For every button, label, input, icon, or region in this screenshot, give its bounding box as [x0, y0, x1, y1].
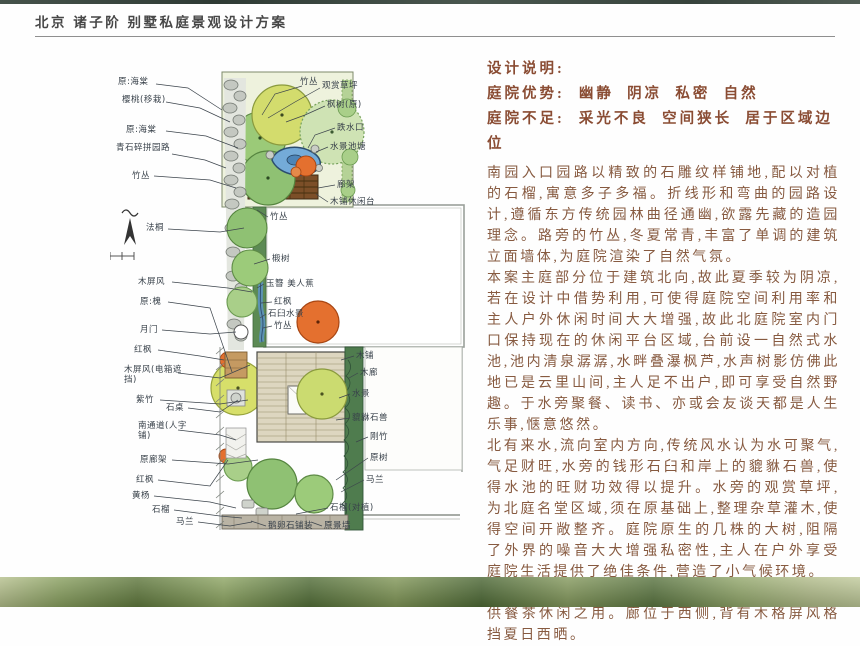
- plan-label: 刚竹: [370, 433, 388, 443]
- plan-label: 玉簪 美人蕉: [266, 280, 314, 290]
- plan-label: 青石碎拼园路: [116, 144, 172, 154]
- north-arrow: [122, 210, 138, 245]
- plan-label: 红枫: [136, 476, 154, 486]
- plan-label: 月门: [140, 326, 158, 336]
- plan-label: 南通道(人字铺): [138, 422, 188, 441]
- plan-label: 竹丛: [270, 213, 288, 223]
- courtyard-pros-line: 庭院优势:幽静 阴凉 私密 自然: [487, 82, 840, 107]
- plan-label: 石臼水景: [268, 310, 304, 320]
- plan-label: 木廊: [360, 369, 378, 379]
- plan-label: 法桐: [146, 224, 164, 234]
- plan-label: 石桌: [166, 404, 184, 414]
- plan-label: 貔貅石兽: [352, 414, 388, 424]
- plan-label: 原廊架: [140, 456, 167, 466]
- page: { "header": { "title": "北京 诸子阶 别墅私庭景观设计方…: [0, 0, 860, 607]
- page-title: 北京 诸子阶 别墅私庭景观设计方案: [35, 11, 288, 31]
- plan-label: 廊架: [337, 181, 355, 191]
- plan-label: 石榴: [152, 506, 170, 516]
- courtyard-cons-line: 庭院不足:采光不良 空间狭长 居于区域边位: [487, 107, 840, 157]
- design-notes: 设计说明: 庭院优势:幽静 阴凉 私密 自然 庭院不足:采光不良 空间狭长 居于…: [487, 57, 840, 646]
- plan-label: 竹丛: [132, 172, 150, 182]
- top-accent-bar: [0, 0, 860, 4]
- pros-label: 庭院优势:: [487, 86, 565, 102]
- plan-label: 红枫: [134, 346, 152, 356]
- notes-paragraph: 南园入口园路以精致的石雕纹样铺地,配以对植的石榴,寓意多子多福。折线形和弯曲的园…: [487, 163, 840, 268]
- plan-label: 木屏风: [138, 278, 165, 288]
- plan-label: 观赏草坪: [322, 82, 358, 92]
- plan-label: 原:海棠: [126, 126, 156, 136]
- plan-label: 竹丛: [274, 322, 292, 332]
- plan-label: 马兰: [366, 476, 384, 486]
- plan-label: 鹅卵石铺装: [268, 522, 313, 532]
- scale-bar: [110, 252, 134, 260]
- plan-label: 石榴(对植): [330, 504, 374, 514]
- cons-label: 庭院不足:: [487, 111, 565, 127]
- plan-label: 水景池塘: [330, 143, 366, 153]
- plan-label: 水景: [352, 390, 370, 400]
- plan-label: 木铺休闲台: [330, 198, 375, 208]
- plan-label: 黄杨: [132, 492, 150, 502]
- plan-label: 原:海棠: [118, 78, 148, 88]
- design-notes-heading: 设计说明:: [487, 57, 840, 82]
- plan-label: 木铺: [356, 352, 374, 362]
- plan-label: 红枫: [274, 298, 292, 308]
- plan-label: 椴树: [272, 255, 290, 265]
- plan-label: 原:槐: [140, 298, 161, 308]
- plan-label: 原树: [370, 454, 388, 464]
- plan-label: 跌水口: [337, 124, 364, 134]
- plan-label: 紫竹: [136, 396, 154, 406]
- plan-label: 马兰: [176, 518, 194, 528]
- plan-label: 木屏风(电箱遮挡): [124, 366, 186, 385]
- notes-paragraph: 本案主庭部分位于建筑北向,故此夏季较为阴凉,若在设计中借势利用,可使得庭院空间利…: [487, 268, 840, 436]
- plan-label: 樱桃(移栽): [122, 96, 166, 106]
- garden-plan: 原:海棠 樱桃(移栽) 原:海棠 青石碎拼园路 竹丛 法桐 木屏风 原:槐 月门…: [110, 60, 480, 565]
- plan-label: 枫树(原): [327, 101, 362, 111]
- plan-label: 原景墙: [324, 522, 351, 532]
- plan-label: 竹丛: [300, 78, 318, 88]
- header-divider: [35, 36, 835, 37]
- notes-paragraph: 北有来水,流向室内方向,传统风水认为水可聚气,气足财旺,水旁的钱形石臼和岸上的貔…: [487, 436, 840, 583]
- design-notes-body: 南园入口园路以精致的石雕纹样铺地,配以对植的石榴,寓意多子多福。折线形和弯曲的园…: [487, 163, 840, 646]
- footer-foliage-band: [0, 577, 860, 607]
- pros-values: 幽静 阴凉 私密 自然: [579, 86, 759, 102]
